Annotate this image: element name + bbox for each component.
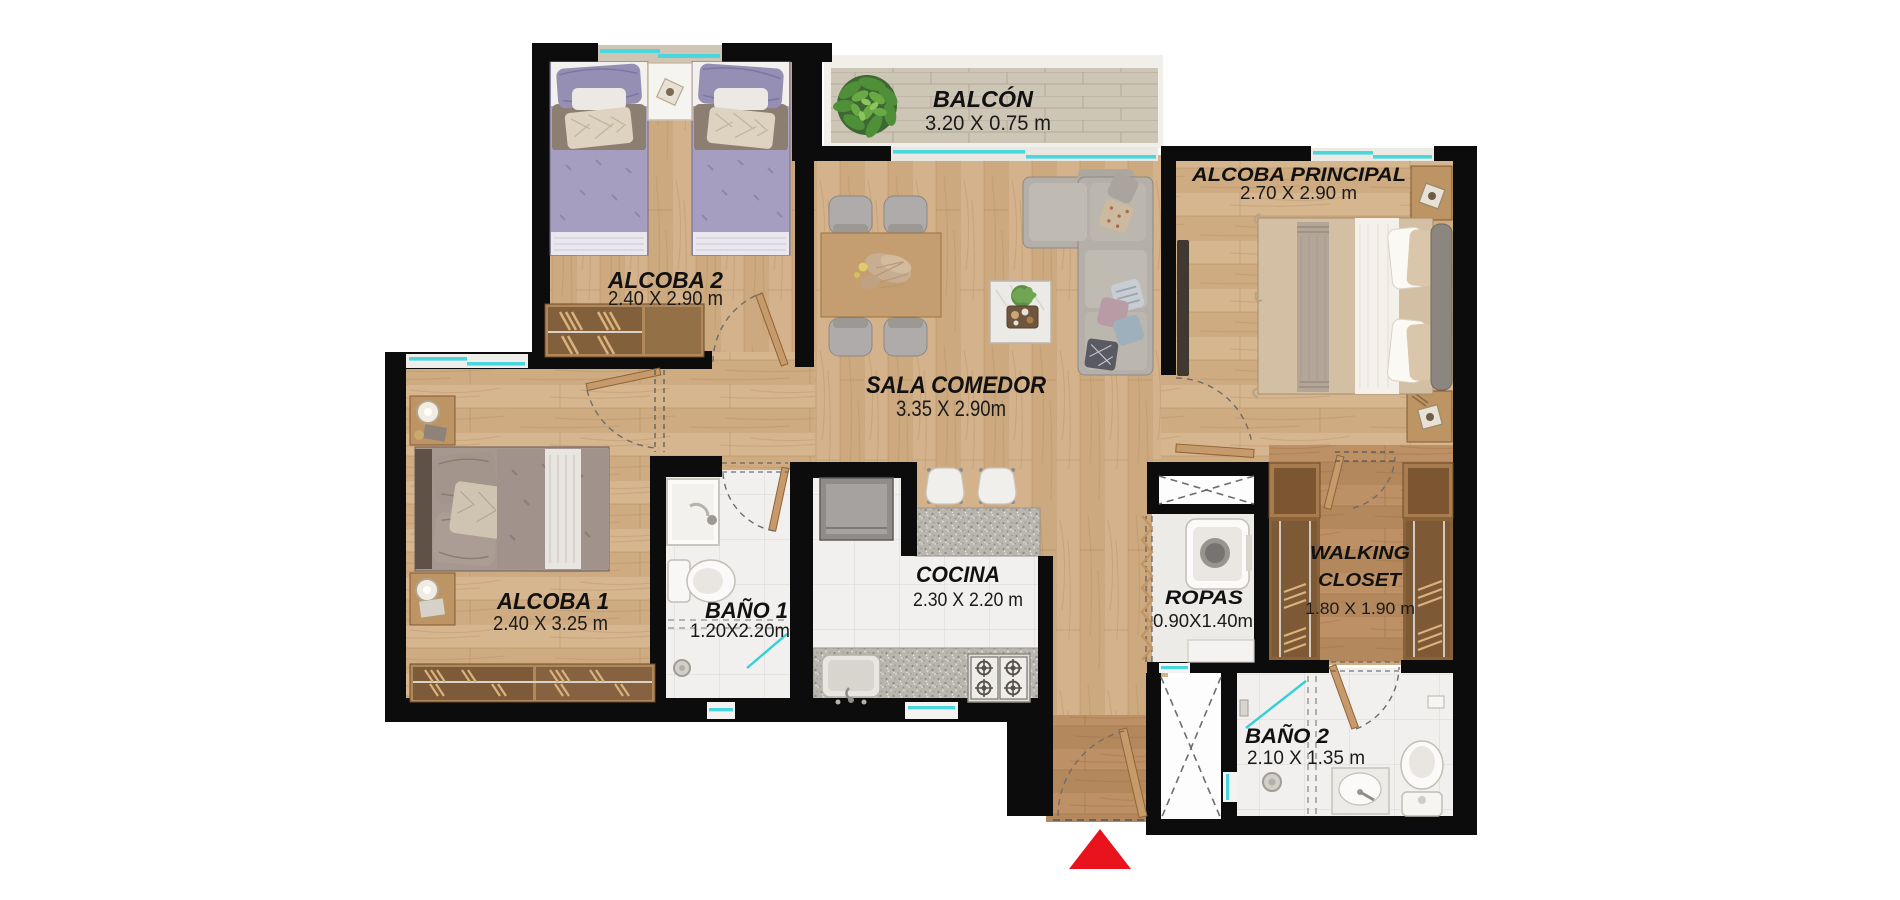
svg-text:2.10 X 1.35 m: 2.10 X 1.35 m	[1247, 748, 1365, 769]
svg-text:1.80 X 1.90 m: 1.80 X 1.90 m	[1305, 599, 1415, 618]
svg-text:3.35 X 2.90m: 3.35 X 2.90m	[896, 396, 1006, 421]
svg-text:COCINA: COCINA	[916, 562, 1000, 587]
svg-text:SALA COMEDOR: SALA COMEDOR	[866, 372, 1047, 399]
svg-text:2.70 X 2.90 m: 2.70 X 2.90 m	[1240, 183, 1357, 203]
svg-text:CLOSET: CLOSET	[1318, 569, 1403, 590]
svg-text:ROPAS: ROPAS	[1165, 588, 1243, 609]
svg-text:WALKING: WALKING	[1310, 542, 1410, 563]
svg-text:2.40 X 3.25 m: 2.40 X 3.25 m	[493, 613, 608, 635]
svg-text:2.40 X 2.90 m: 2.40 X 2.90 m	[608, 288, 723, 310]
svg-text:1.20X2.20m: 1.20X2.20m	[690, 621, 790, 642]
svg-text:3.20 X 0.75 m: 3.20 X 0.75 m	[925, 112, 1051, 135]
svg-text:0.90X1.40m: 0.90X1.40m	[1153, 611, 1253, 631]
svg-text:BALCÓN: BALCÓN	[933, 85, 1034, 112]
svg-text:ALCOBA 1: ALCOBA 1	[496, 588, 609, 614]
svg-text:2.30 X 2.20 m: 2.30 X 2.20 m	[913, 590, 1023, 611]
svg-text:BAÑO 2: BAÑO 2	[1245, 725, 1329, 748]
svg-text:BAÑO 1: BAÑO 1	[705, 598, 788, 623]
